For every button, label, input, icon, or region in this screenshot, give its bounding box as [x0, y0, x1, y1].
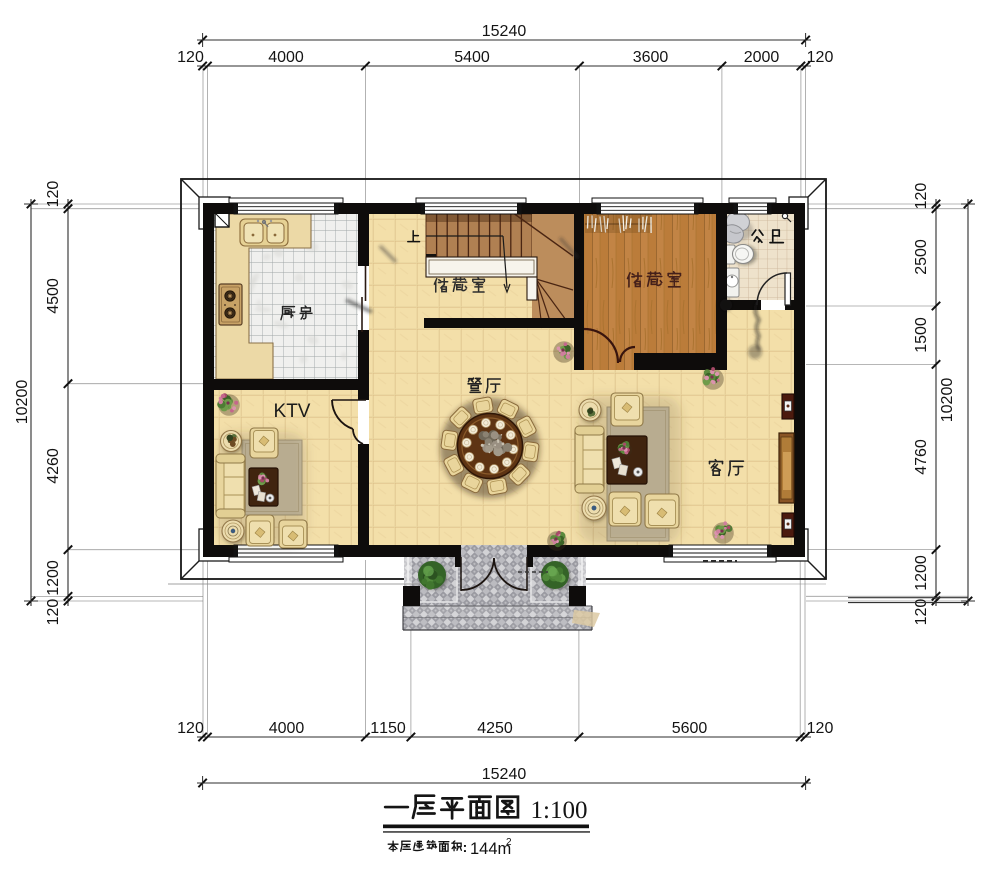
svg-text:KTV: KTV [274, 401, 311, 422]
svg-text:120: 120 [45, 181, 62, 208]
svg-text:120: 120 [807, 720, 834, 737]
svg-text::: : [463, 839, 468, 855]
svg-text:1:100: 1:100 [531, 797, 588, 824]
svg-text:2000: 2000 [744, 49, 780, 66]
svg-text:1500: 1500 [913, 317, 930, 353]
svg-text:4760: 4760 [913, 439, 930, 475]
svg-text:10200: 10200 [14, 380, 31, 425]
svg-text:4000: 4000 [269, 720, 305, 737]
svg-text:120: 120 [177, 720, 204, 737]
svg-text:4500: 4500 [45, 278, 62, 314]
svg-text:4260: 4260 [45, 448, 62, 484]
svg-text:120: 120 [177, 49, 204, 66]
svg-text:2500: 2500 [913, 239, 930, 275]
svg-text:15240: 15240 [482, 766, 527, 783]
svg-text:120: 120 [807, 49, 834, 66]
svg-text:5600: 5600 [672, 720, 708, 737]
svg-text:1200: 1200 [913, 555, 930, 591]
svg-text:1150: 1150 [370, 720, 406, 737]
svg-text:2: 2 [506, 837, 512, 848]
svg-text:4000: 4000 [268, 49, 304, 66]
svg-text:120: 120 [913, 183, 930, 210]
svg-text:4250: 4250 [477, 720, 513, 737]
svg-text:15240: 15240 [482, 23, 527, 40]
svg-text:1200: 1200 [45, 560, 62, 596]
svg-text:3600: 3600 [633, 49, 669, 66]
svg-text:120: 120 [45, 599, 62, 626]
svg-text:10200: 10200 [939, 378, 956, 423]
svg-text:5400: 5400 [454, 49, 490, 66]
